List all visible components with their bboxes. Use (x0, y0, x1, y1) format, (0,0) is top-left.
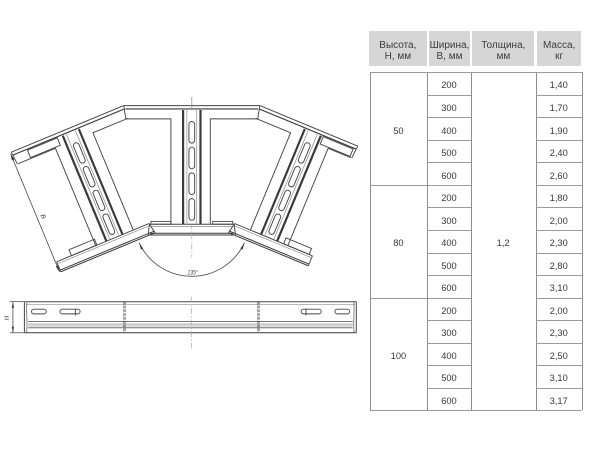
svg-text:B: B (39, 213, 48, 221)
svg-text:135°: 135° (188, 271, 199, 277)
svg-text:H: H (3, 315, 10, 321)
